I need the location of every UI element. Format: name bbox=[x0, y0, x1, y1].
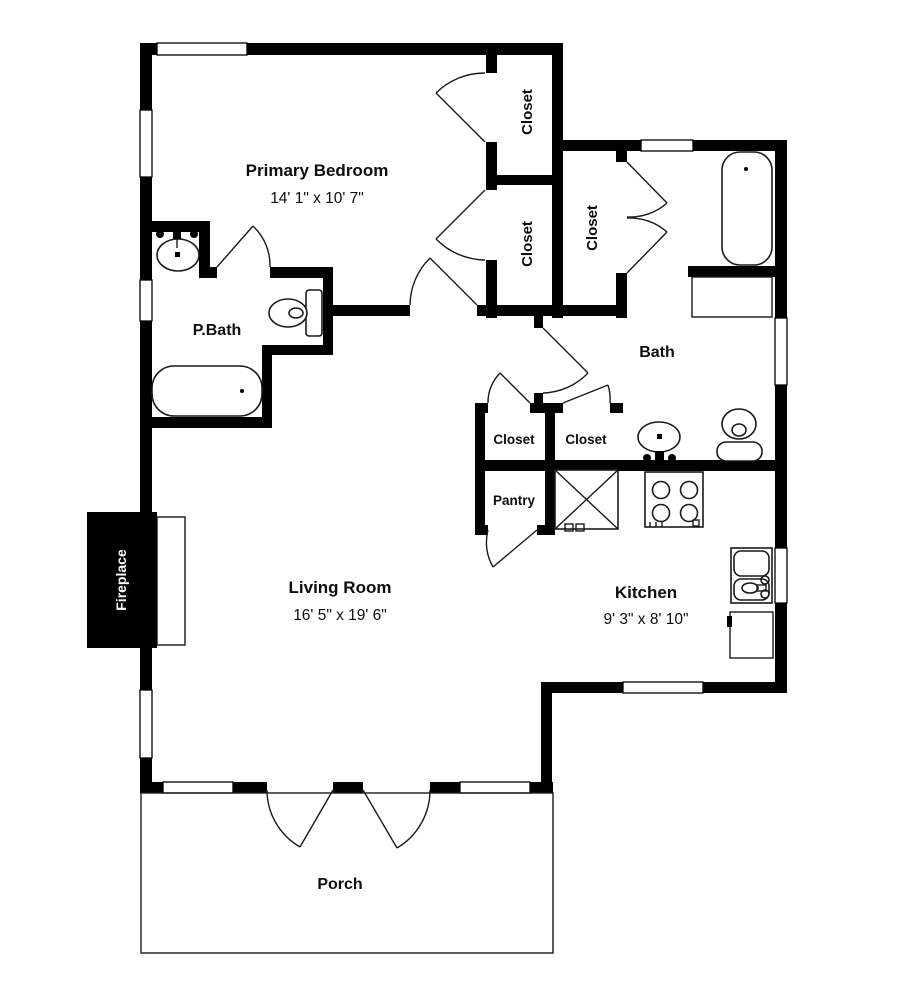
kitchen-dims: 9' 3" x 8' 10" bbox=[603, 611, 688, 628]
fireplace: Fireplace bbox=[87, 512, 185, 648]
window-bath-top bbox=[641, 140, 693, 151]
window-left-bedroom bbox=[140, 110, 152, 177]
kitchen-sink-icon bbox=[731, 548, 772, 603]
porch-outline bbox=[141, 793, 553, 953]
porch-label: Porch bbox=[317, 876, 362, 893]
stove-icon bbox=[645, 472, 703, 527]
window-living-right bbox=[460, 782, 530, 793]
bath-vanity bbox=[692, 277, 772, 317]
window-left-living bbox=[140, 690, 152, 758]
window-right-bath bbox=[775, 318, 787, 385]
bath-sink-icon bbox=[638, 422, 680, 462]
dishwasher-icon bbox=[727, 612, 773, 658]
door-pantry bbox=[486, 530, 537, 567]
opening-front-door-right bbox=[363, 782, 430, 793]
wall-pbath-right-upper bbox=[323, 267, 333, 355]
opening-closet5 bbox=[563, 403, 610, 413]
pbath-bathtub-icon bbox=[152, 366, 262, 416]
door-front-right bbox=[363, 790, 430, 848]
closet1-label: Closet bbox=[519, 89, 536, 135]
opening-closet1 bbox=[486, 73, 497, 142]
opening-pantry bbox=[488, 525, 537, 535]
closet2-label: Closet bbox=[519, 221, 536, 267]
wall-closet-divider bbox=[486, 175, 563, 185]
door-closet5 bbox=[563, 385, 610, 403]
door-closet3-bifold-top bbox=[627, 162, 667, 217]
window-kitchen-bottom bbox=[623, 682, 703, 693]
living-room-label: Living Room bbox=[289, 578, 392, 597]
opening-closet2 bbox=[486, 190, 497, 260]
pbath-label: P.Bath bbox=[193, 322, 242, 339]
floor-plan-drawing: Fireplace Primary Bedroom 14' 1" x 10' 7… bbox=[0, 0, 902, 1000]
porch bbox=[141, 793, 553, 953]
wall-pbath-step bbox=[262, 345, 333, 355]
door-bedroom bbox=[410, 258, 477, 305]
fixtures bbox=[152, 152, 773, 658]
kitchen-label: Kitchen bbox=[615, 583, 677, 602]
closet3-label: Closet bbox=[584, 205, 601, 251]
walls bbox=[140, 43, 787, 793]
window-left-pbath bbox=[140, 280, 152, 321]
primary-bedroom-label: Primary Bedroom bbox=[246, 161, 389, 180]
wall-right-exterior bbox=[775, 140, 787, 693]
bath-label: Bath bbox=[639, 344, 675, 361]
hearth bbox=[157, 517, 185, 645]
wall-pbath-right-lower bbox=[262, 345, 272, 428]
wall-bedroom-bottom-right bbox=[477, 305, 627, 316]
opening-closet4 bbox=[488, 403, 530, 413]
appliance-x-icon bbox=[555, 470, 618, 531]
floor-plan: Fireplace Primary Bedroom 14' 1" x 10' 7… bbox=[0, 0, 902, 1000]
bath-toilet-icon bbox=[717, 409, 762, 461]
pbath-toilet-icon bbox=[269, 290, 322, 336]
pbath-sink-icon bbox=[156, 230, 199, 271]
door-closet3-bifold-bottom bbox=[627, 218, 667, 273]
window-right-kitchen bbox=[775, 548, 787, 603]
door-front-left bbox=[267, 790, 333, 847]
living-room-dims: 16' 5" x 19' 6" bbox=[293, 607, 387, 624]
opening-bedroom-door bbox=[410, 305, 477, 316]
wall-bedroom-bottom-left bbox=[323, 305, 410, 316]
wall-tub-nook bbox=[688, 266, 777, 277]
closet4-label: Closet bbox=[493, 432, 535, 447]
wall-pbath-north-a bbox=[199, 267, 217, 278]
fireplace-label: Fireplace bbox=[113, 549, 129, 611]
opening-pbath-door bbox=[217, 267, 270, 278]
door-closet2 bbox=[436, 190, 485, 260]
door-closet4 bbox=[488, 373, 530, 403]
window-bedroom-top bbox=[157, 43, 247, 55]
door-closet1 bbox=[436, 73, 485, 142]
wall-step-right bbox=[541, 682, 552, 793]
pantry-label: Pantry bbox=[493, 493, 536, 508]
closet5-label: Closet bbox=[565, 432, 607, 447]
window-living-left bbox=[163, 782, 233, 793]
wall-pbath-bottom bbox=[140, 417, 272, 428]
door-bath bbox=[543, 328, 588, 393]
opening-closet3-bifold bbox=[616, 162, 627, 273]
opening-bath-door bbox=[534, 328, 543, 393]
opening-front-door-left bbox=[267, 782, 333, 793]
door-pbath bbox=[217, 226, 270, 267]
bath-bathtub-icon bbox=[722, 152, 772, 265]
primary-bedroom-dims: 14' 1" x 10' 7" bbox=[270, 190, 364, 207]
